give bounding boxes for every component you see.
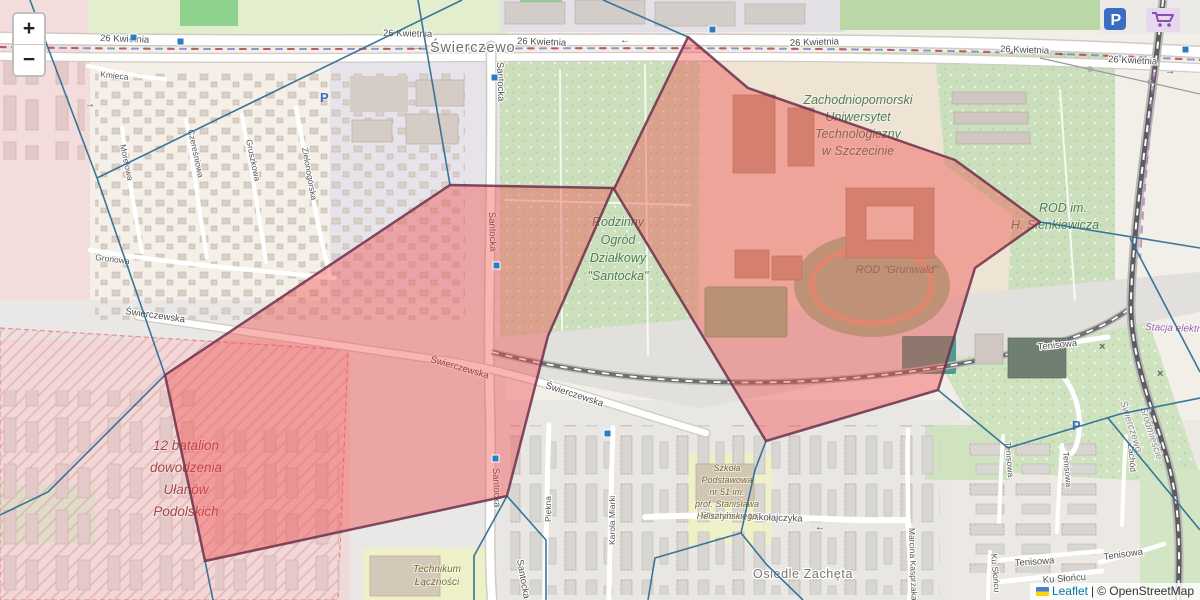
bus-stop-marker xyxy=(491,74,498,81)
bus-stop-marker xyxy=(130,34,137,41)
street-label: 26 Kwietnia xyxy=(1000,44,1050,57)
rod-santocka-label: "Santocka" xyxy=(588,269,650,283)
zoom-out-button[interactable]: − xyxy=(14,45,44,75)
parking-icon: P xyxy=(320,90,329,105)
openstreetmap-link[interactable]: © OpenStreetMap xyxy=(1097,584,1194,598)
oneway-arrow-icon: ← xyxy=(1058,48,1068,59)
place-label-swierczewo: Świerczewo xyxy=(430,38,515,56)
oneway-arrow-icon: → xyxy=(413,42,423,53)
oneway-arrow-icon: ← xyxy=(815,522,825,533)
ukraine-flag-icon xyxy=(1036,587,1049,596)
oneway-arrow-icon: → xyxy=(1165,66,1175,77)
rail-crossing-icon: × xyxy=(1099,341,1105,353)
bus-stop-marker xyxy=(709,26,716,33)
rod-santocka-label: Ogród xyxy=(601,233,637,247)
rail-crossing-icon: × xyxy=(1157,368,1163,380)
street-label: Santocka xyxy=(494,62,506,103)
bus-stop-marker xyxy=(492,455,499,462)
attribution-bar: Leaflet|© OpenStreetMap xyxy=(1030,583,1200,600)
supermarket-cart-icon xyxy=(1146,8,1180,32)
school-label: Helsztyńskiego xyxy=(697,511,758,521)
technikum-label: Łączności xyxy=(415,577,460,588)
school-label: Szkoła xyxy=(713,463,740,473)
place-label-osiedle-zacheta: Osiedle Zachęta xyxy=(753,567,853,581)
street-label: 26 Kwietnia xyxy=(517,36,567,49)
university-label: Zachodniopomorski xyxy=(802,93,913,107)
zoom-in-button[interactable]: + xyxy=(14,14,44,45)
rod-sienkiewicza-label: ROD im. xyxy=(1039,201,1087,215)
oneway-arrow-icon: → xyxy=(85,99,95,110)
map-canvas[interactable]: 26 Kwietnia 26 Kwietnia 26 Kwietnia 26 K… xyxy=(0,0,1200,600)
technikum-label: Technikum xyxy=(413,564,461,575)
parking-letter: P xyxy=(1111,12,1122,29)
bus-stop-marker xyxy=(493,262,500,269)
bus-stop-marker xyxy=(604,430,611,437)
zoom-control: + − xyxy=(12,12,46,77)
street-label: 26 Kwietnia xyxy=(383,28,433,40)
school-label: prof. Stanisława xyxy=(694,499,759,509)
leaflet-link[interactable]: Leaflet xyxy=(1052,584,1088,598)
school-label: nr 51 im. xyxy=(709,487,744,497)
bus-stop-marker xyxy=(177,38,184,45)
attribution-separator: | xyxy=(1091,584,1094,598)
school-label: Podstawowa xyxy=(701,475,752,485)
street-label: 26 Kwietnia xyxy=(100,33,150,46)
street-label: Piękna xyxy=(543,496,553,522)
bus-stop-marker xyxy=(1182,46,1189,53)
street-label: 26 Kwietnia xyxy=(790,36,840,49)
map-svg: 26 Kwietnia 26 Kwietnia 26 Kwietnia 26 K… xyxy=(0,0,1200,600)
street-label: Karola Miarki xyxy=(607,495,617,545)
rod-santocka-label: Działkowy xyxy=(590,251,647,265)
oneway-arrow-icon: ← xyxy=(620,35,630,46)
